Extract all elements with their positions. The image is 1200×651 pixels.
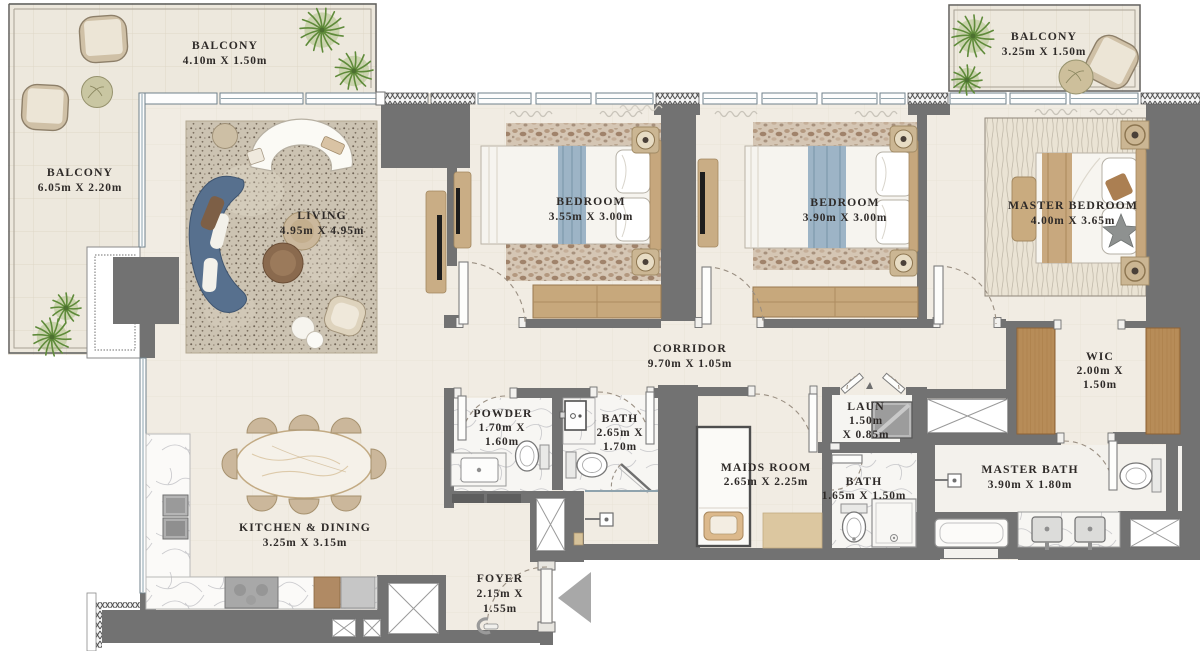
svg-text:BEDROOM: BEDROOM <box>556 195 625 208</box>
svg-text:X 0.85m: X 0.85m <box>843 429 890 441</box>
svg-text:9.70m X 1.05m: 9.70m X 1.05m <box>648 358 732 370</box>
svg-text:1.70m X: 1.70m X <box>479 422 526 434</box>
svg-text:2.65m X 2.25m: 2.65m X 2.25m <box>724 476 808 488</box>
svg-text:CORRIDOR: CORRIDOR <box>653 342 727 355</box>
svg-text:6.05m X 2.20m: 6.05m X 2.20m <box>38 182 122 194</box>
svg-text:3.55m X 3.00m: 3.55m X 3.00m <box>549 211 633 223</box>
svg-text:MAIDS ROOM: MAIDS ROOM <box>721 461 812 474</box>
svg-text:1.60m: 1.60m <box>485 436 519 448</box>
svg-text:MASTER BATH: MASTER BATH <box>981 463 1078 476</box>
svg-text:1.50m: 1.50m <box>849 415 883 427</box>
svg-text:3.25m X 3.15m: 3.25m X 3.15m <box>263 537 347 549</box>
svg-text:2.65m X: 2.65m X <box>597 427 644 439</box>
svg-text:BATH: BATH <box>846 475 883 488</box>
svg-text:POWDER: POWDER <box>473 407 532 420</box>
svg-text:1.55m: 1.55m <box>483 603 517 615</box>
svg-text:KITCHEN & DINING: KITCHEN & DINING <box>239 521 371 534</box>
svg-text:4.95m X 4.95m: 4.95m X 4.95m <box>280 225 364 237</box>
svg-text:LIVING: LIVING <box>297 209 346 222</box>
svg-text:3.90m X 3.00m: 3.90m X 3.00m <box>803 212 887 224</box>
svg-text:BALCONY: BALCONY <box>1011 30 1077 43</box>
svg-text:3.90m X 1.80m: 3.90m X 1.80m <box>988 479 1072 491</box>
svg-text:MASTER BEDROOM: MASTER BEDROOM <box>1008 199 1138 212</box>
svg-text:2.00m X: 2.00m X <box>1077 365 1124 377</box>
svg-text:1.70m: 1.70m <box>603 441 637 453</box>
svg-text:2.15m X: 2.15m X <box>477 588 524 600</box>
svg-text:BEDROOM: BEDROOM <box>810 196 879 209</box>
svg-text:FOYER: FOYER <box>477 572 523 585</box>
svg-text:4.00m X 3.65m: 4.00m X 3.65m <box>1031 215 1115 227</box>
svg-text:BATH: BATH <box>602 412 639 425</box>
svg-text:WIC: WIC <box>1086 350 1114 363</box>
svg-text:3.25m X 1.50m: 3.25m X 1.50m <box>1002 46 1086 58</box>
svg-text:1.50m: 1.50m <box>1083 379 1117 391</box>
svg-text:BALCONY: BALCONY <box>47 166 113 179</box>
svg-text:1.65m X 1.50m: 1.65m X 1.50m <box>822 490 906 502</box>
svg-text:4.10m X 1.50m: 4.10m X 1.50m <box>183 55 267 67</box>
svg-text:LAUN: LAUN <box>847 400 885 413</box>
svg-text:BALCONY: BALCONY <box>192 39 258 52</box>
